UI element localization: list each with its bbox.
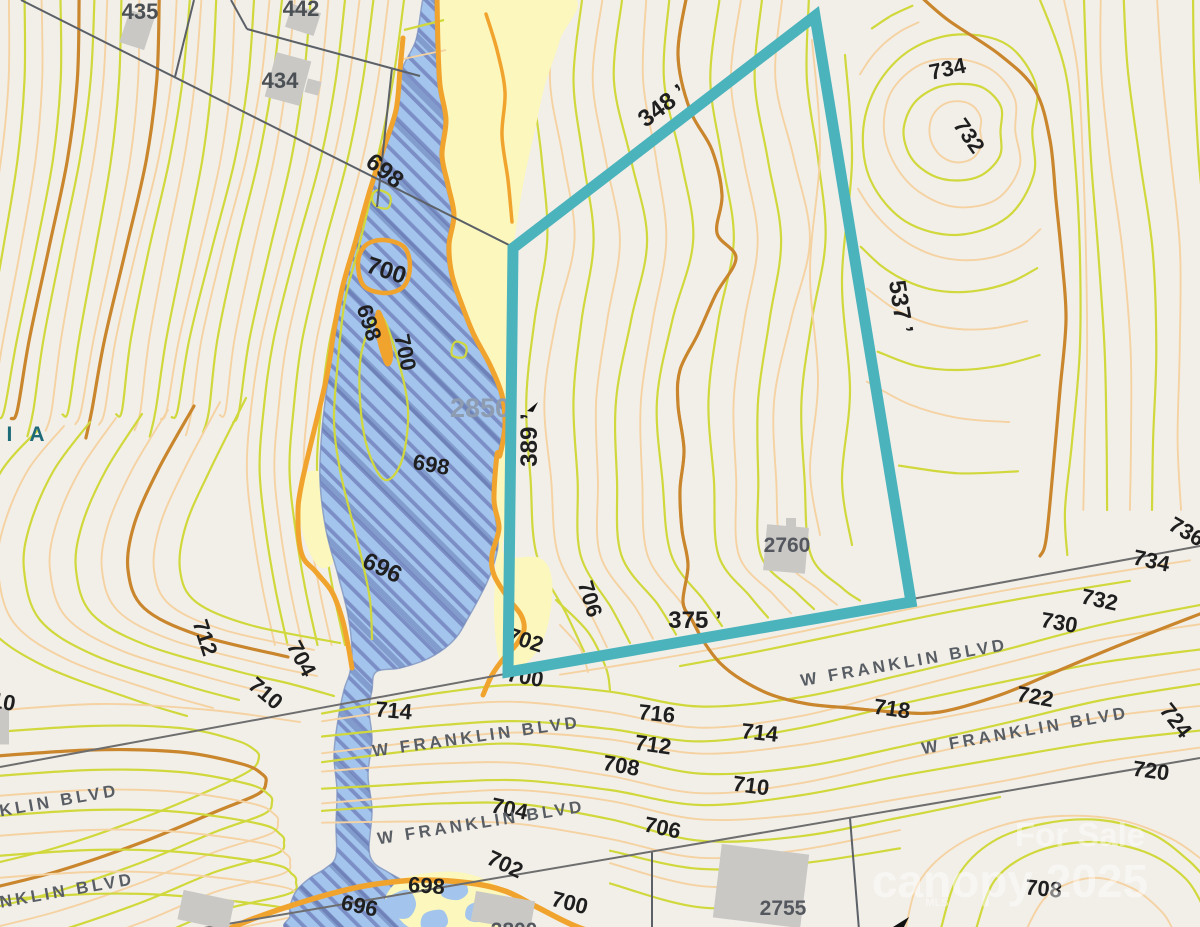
svg-text:718: 718 (872, 694, 912, 724)
svg-text:720: 720 (1131, 756, 1171, 786)
svg-text:2760: 2760 (764, 534, 811, 557)
svg-text:712: 712 (633, 730, 673, 760)
svg-text:714: 714 (374, 696, 414, 724)
svg-text:For Sale: For Sale (1015, 816, 1145, 853)
svg-text:716: 716 (637, 699, 676, 728)
svg-text:710: 710 (731, 771, 771, 801)
svg-text:714: 714 (740, 718, 780, 747)
svg-text:435: 435 (122, 0, 159, 24)
svg-text:N I A: N I A (0, 423, 51, 446)
svg-text:2800: 2800 (491, 919, 538, 927)
svg-text:698: 698 (407, 872, 445, 900)
svg-text:2755: 2755 (760, 897, 807, 920)
svg-text:canopy 2025: canopy 2025 (872, 855, 1148, 907)
svg-text:434: 434 (262, 68, 299, 93)
svg-text:389 ’: 389 ’ (516, 413, 543, 466)
svg-text:442: 442 (283, 0, 320, 21)
svg-text:375 ’: 375 ’ (668, 607, 721, 634)
svg-text:MLS: MLS (925, 897, 948, 909)
svg-text:2850: 2850 (450, 393, 510, 423)
